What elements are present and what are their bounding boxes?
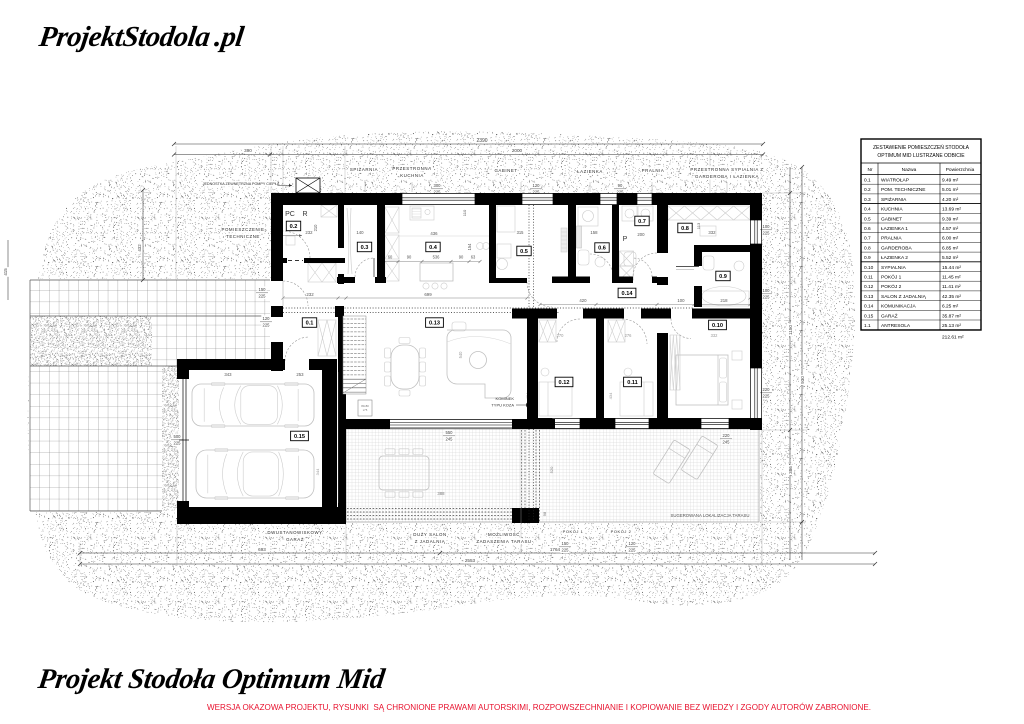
svg-text:0.14: 0.14 — [622, 291, 634, 297]
svg-text:390: 390 — [244, 148, 252, 153]
svg-text:200: 200 — [637, 232, 645, 237]
svg-text:100: 100 — [763, 288, 771, 293]
svg-text:SALON Z JADALNIĄ: SALON Z JADALNIĄ — [881, 294, 927, 300]
svg-text:PRZESTRONNA SYPIALNIA Z: PRZESTRONNA SYPIALNIA Z — [690, 167, 763, 172]
svg-text:JEDNOSTKA ZEWNĘTRZNA POMPY CIE: JEDNOSTKA ZEWNĘTRZNA POMPY CIEPŁA — [203, 182, 280, 186]
svg-text:0.8: 0.8 — [681, 226, 689, 232]
svg-text:0.12: 0.12 — [559, 380, 570, 386]
svg-text:225: 225 — [174, 440, 182, 445]
svg-text:90: 90 — [618, 183, 623, 188]
svg-text:0.11: 0.11 — [864, 275, 873, 281]
svg-text:550: 550 — [446, 430, 454, 435]
svg-text:0.4: 0.4 — [864, 207, 871, 213]
svg-text:MOŻLIWOŚĆ: MOŻLIWOŚĆ — [488, 532, 520, 537]
svg-text:35.87 m²: 35.87 m² — [942, 313, 961, 319]
svg-text:0.5: 0.5 — [520, 249, 528, 255]
svg-text:TECHNICZNE: TECHNICZNE — [226, 234, 260, 239]
svg-text:154: 154 — [467, 243, 472, 251]
svg-text:386: 386 — [788, 466, 793, 474]
svg-text:699: 699 — [424, 292, 432, 297]
svg-text:PRZESTRONNA: PRZESTRONNA — [392, 166, 431, 171]
svg-text:415: 415 — [3, 268, 8, 276]
svg-text:0.15: 0.15 — [864, 313, 874, 319]
svg-text:930: 930 — [800, 376, 805, 384]
svg-text:42.35 m²: 42.35 m² — [942, 294, 961, 300]
svg-text:158: 158 — [590, 230, 598, 235]
svg-text:0.8: 0.8 — [864, 245, 871, 251]
svg-text:GARDEROBA: GARDEROBA — [881, 245, 912, 251]
svg-text:436: 436 — [430, 231, 438, 236]
svg-text:GABINET: GABINET — [881, 216, 902, 222]
svg-text:TYPU KOZA: TYPU KOZA — [491, 403, 514, 408]
svg-text:0.12: 0.12 — [864, 284, 874, 290]
svg-text:225: 225 — [562, 547, 570, 552]
svg-text:PRALNIA: PRALNIA — [881, 236, 902, 242]
svg-text:220: 220 — [723, 433, 731, 438]
svg-text:0.11: 0.11 — [627, 380, 638, 386]
svg-text:1.1: 1.1 — [864, 323, 871, 329]
svg-text:150: 150 — [259, 287, 267, 292]
svg-text:13.69 m²: 13.69 m² — [942, 207, 961, 213]
svg-text:ZESTAWIENIE POMIESZCZEŃ STODOŁ: ZESTAWIENIE POMIESZCZEŃ STODOŁA — [873, 144, 970, 151]
svg-text:120: 120 — [629, 541, 637, 546]
svg-text:DUŻY SALON: DUŻY SALON — [413, 532, 446, 537]
svg-text:0.6: 0.6 — [598, 246, 606, 252]
svg-text:0.9: 0.9 — [719, 274, 727, 280]
svg-text:245: 245 — [723, 439, 731, 444]
svg-text:140: 140 — [356, 230, 364, 235]
svg-text:ZADASZENIA TARASU: ZADASZENIA TARASU — [476, 539, 531, 544]
svg-text:GARDEROBĄ I ŁAZIENKĄ: GARDEROBĄ I ŁAZIENKĄ — [695, 174, 759, 179]
svg-text:POM. TECHNICZNE: POM. TECHNICZNE — [881, 187, 925, 193]
svg-text:434: 434 — [608, 392, 613, 399]
svg-text:232: 232 — [306, 292, 314, 297]
svg-text:2390: 2390 — [476, 138, 487, 144]
svg-text:5.01 m²: 5.01 m² — [942, 187, 959, 193]
svg-text:90: 90 — [459, 255, 464, 260]
svg-text:9.49 m²: 9.49 m² — [942, 178, 959, 184]
svg-text:25.13 m²: 25.13 m² — [942, 323, 961, 329]
svg-text:0.10: 0.10 — [712, 323, 723, 329]
svg-text:300: 300 — [434, 183, 442, 188]
svg-text:1764: 1764 — [550, 547, 561, 552]
svg-text:6.25 m²: 6.25 m² — [942, 304, 959, 310]
svg-text:1150: 1150 — [788, 325, 793, 335]
svg-text:15.44 m²: 15.44 m² — [942, 265, 961, 271]
svg-text:0.5: 0.5 — [864, 216, 871, 222]
svg-text:0.3: 0.3 — [361, 245, 369, 251]
svg-text:0.1: 0.1 — [306, 321, 314, 327]
svg-text:SUGEROWANA LOKALIZACJA TARASU: SUGEROWANA LOKALIZACJA TARASU — [671, 513, 750, 518]
svg-text:POMIESZCZENIE: POMIESZCZENIE — [221, 227, 264, 232]
svg-text:5.52 m²: 5.52 m² — [942, 255, 959, 261]
svg-text:9.39 m²: 9.39 m² — [942, 216, 959, 222]
svg-text:693: 693 — [258, 547, 266, 552]
svg-text:KUCHNIA: KUCHNIA — [400, 173, 424, 178]
svg-text:500: 500 — [174, 434, 182, 439]
svg-text:PC: PC — [285, 211, 295, 218]
svg-text:0.2: 0.2 — [864, 187, 871, 193]
svg-text:220: 220 — [763, 387, 771, 392]
svg-text:Nazwa: Nazwa — [902, 167, 917, 173]
svg-text:315: 315 — [517, 230, 525, 235]
svg-text:0.15: 0.15 — [294, 434, 305, 440]
svg-text:6.85 m²: 6.85 m² — [942, 245, 959, 251]
svg-text:POKÓJ 2: POKÓJ 2 — [611, 529, 632, 534]
svg-text:100: 100 — [677, 298, 685, 303]
svg-text:POKÓJ 2: POKÓJ 2 — [881, 283, 902, 290]
svg-text:KUCHNIA: KUCHNIA — [881, 207, 903, 213]
svg-text:KOMINEK: KOMINEK — [496, 396, 515, 401]
svg-text:0.10: 0.10 — [864, 265, 874, 271]
svg-text:GABINET: GABINET — [494, 168, 517, 173]
svg-text:GARAŻ: GARAŻ — [881, 312, 898, 319]
svg-text:120: 120 — [263, 316, 271, 321]
svg-text:GARAŻ: GARAŻ — [286, 537, 304, 542]
svg-text:DWUSTANOWISKOWY: DWUSTANOWISKOWY — [267, 530, 322, 535]
svg-text:432: 432 — [137, 244, 142, 252]
svg-text:344: 344 — [315, 468, 320, 475]
svg-text:Z JADALNIĄ: Z JADALNIĄ — [415, 539, 445, 544]
svg-text:Nr: Nr — [867, 167, 872, 173]
svg-text:SYPIALNIA: SYPIALNIA — [881, 265, 907, 271]
svg-text:ŁAZIENKA: ŁAZIENKA — [577, 169, 603, 174]
svg-text:2000: 2000 — [512, 148, 523, 153]
svg-text:Powierzchnia: Powierzchnia — [946, 167, 975, 173]
svg-text:P: P — [623, 236, 628, 243]
svg-text:0.4: 0.4 — [429, 245, 438, 251]
svg-text:98: 98 — [542, 511, 547, 516]
svg-text:225: 225 — [763, 294, 771, 299]
svg-text:KOMUNIKACJA: KOMUNIKACJA — [881, 304, 916, 310]
svg-text:150: 150 — [562, 541, 570, 546]
svg-text:11.45 m²: 11.45 m² — [942, 275, 961, 281]
svg-text:0.7: 0.7 — [638, 219, 646, 225]
svg-text:60: 60 — [388, 255, 393, 260]
svg-text:PRALNIA: PRALNIA — [642, 168, 665, 173]
svg-text:420: 420 — [579, 298, 587, 303]
svg-text:120: 120 — [533, 183, 541, 188]
svg-text:ANTRESOLA: ANTRESOLA — [881, 323, 911, 329]
svg-text:0.6: 0.6 — [864, 226, 871, 232]
svg-text:225: 225 — [763, 230, 771, 235]
svg-text:6.00 m²: 6.00 m² — [942, 236, 959, 242]
svg-text:520: 520 — [549, 466, 554, 473]
svg-text:388: 388 — [437, 491, 445, 496]
svg-text:225: 225 — [763, 393, 771, 398]
svg-text:218: 218 — [720, 298, 728, 303]
svg-text:0.13: 0.13 — [864, 294, 874, 300]
svg-text:2553: 2553 — [465, 558, 476, 563]
svg-text:0.2: 0.2 — [290, 224, 298, 230]
svg-text:ŁAZIENKA 2: ŁAZIENKA 2 — [881, 255, 908, 261]
svg-text:210: 210 — [313, 224, 318, 232]
svg-text:63: 63 — [471, 255, 476, 260]
svg-text:276: 276 — [625, 333, 633, 338]
svg-text:245: 245 — [446, 436, 454, 441]
svg-text:OPTIMUM MID LUSTRZANE ODBICIE: OPTIMUM MID LUSTRZANE ODBICIE — [877, 153, 965, 159]
svg-text:WIATROŁAP: WIATROŁAP — [881, 178, 909, 184]
svg-text:332: 332 — [708, 230, 716, 235]
svg-text:540: 540 — [458, 351, 463, 359]
svg-text:90: 90 — [407, 255, 412, 260]
svg-text:0.3: 0.3 — [864, 197, 871, 203]
svg-text:0.14: 0.14 — [864, 304, 874, 310]
svg-text:SPIŻARNIA: SPIŻARNIA — [350, 167, 378, 172]
svg-text:225: 225 — [259, 293, 267, 298]
svg-text:11.41 m²: 11.41 m² — [942, 284, 961, 290]
svg-text:0.1: 0.1 — [864, 178, 871, 184]
svg-text:225: 225 — [629, 547, 637, 552]
svg-text:113: 113 — [696, 222, 701, 229]
svg-text:536: 536 — [433, 255, 441, 260]
svg-text:0.7: 0.7 — [864, 236, 871, 242]
svg-text:4.57 m²: 4.57 m² — [942, 226, 959, 232]
svg-text:POKÓJ 1: POKÓJ 1 — [563, 529, 584, 534]
svg-text:100: 100 — [763, 224, 771, 229]
svg-text:POKÓJ 1: POKÓJ 1 — [881, 274, 902, 281]
svg-text:x75: x75 — [363, 408, 368, 412]
svg-text:253: 253 — [296, 372, 304, 377]
svg-text:R: R — [302, 211, 307, 218]
svg-text:ŁAZIENKA 1: ŁAZIENKA 1 — [881, 226, 908, 232]
svg-text:332: 332 — [711, 333, 719, 338]
svg-text:110: 110 — [462, 209, 467, 216]
svg-text:212.61 m²: 212.61 m² — [942, 335, 964, 341]
svg-text:SPIŻARNIA: SPIŻARNIA — [881, 196, 907, 203]
svg-text:225: 225 — [263, 322, 271, 327]
svg-text:0.9: 0.9 — [864, 255, 871, 261]
svg-text:0.13: 0.13 — [429, 321, 440, 327]
svg-text:4.20 m²: 4.20 m² — [942, 197, 959, 203]
svg-text:343: 343 — [224, 372, 232, 377]
